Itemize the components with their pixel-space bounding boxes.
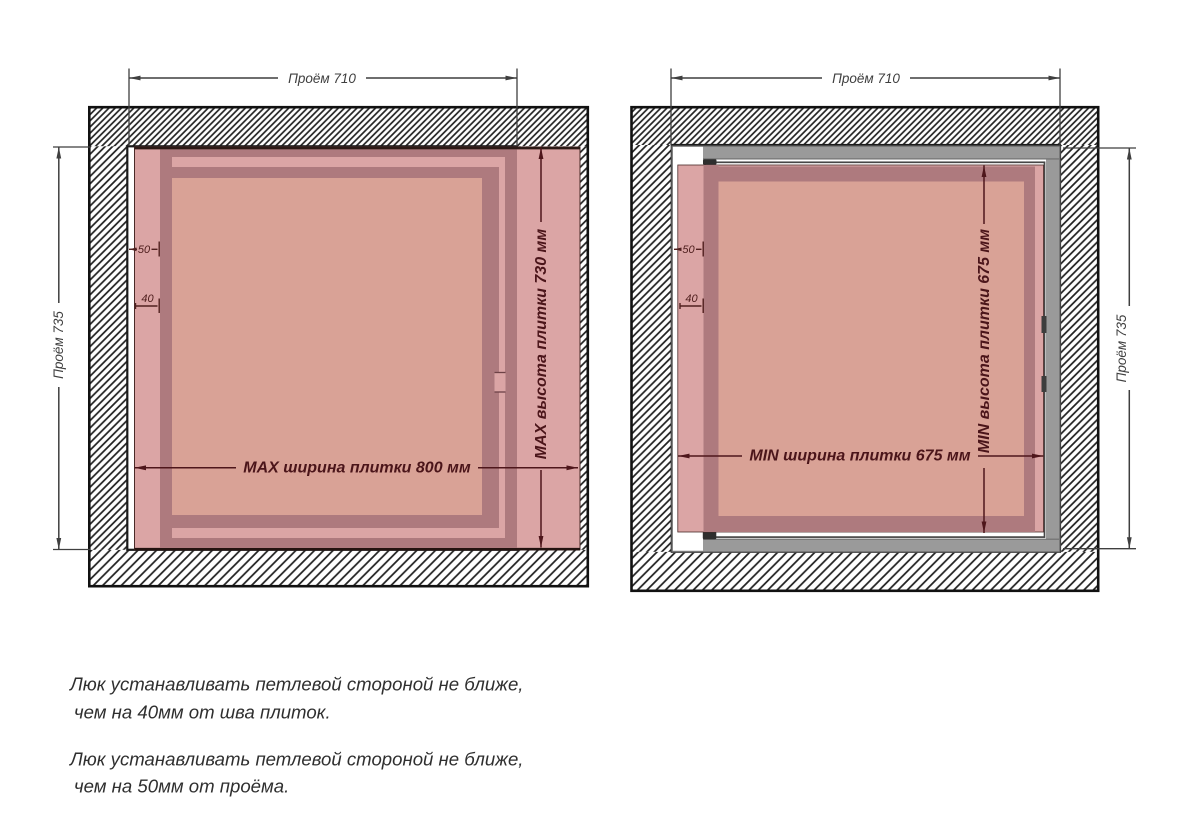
svg-text:40: 40	[141, 293, 154, 305]
svg-text:MIN высота плитки 675 мм: MIN высота плитки 675 мм	[976, 229, 993, 453]
svg-text:чем на 50мм от проёма.: чем на 50мм от проёма.	[74, 776, 289, 797]
svg-text:40: 40	[685, 293, 698, 305]
svg-text:Люк устанавливать петлевой сто: Люк устанавливать петлевой стороной не б…	[69, 749, 523, 770]
svg-text:MAX ширина плитки 800 мм: MAX ширина плитки 800 мм	[243, 460, 471, 477]
svg-text:MIN ширина плитки 675 мм: MIN ширина плитки 675 мм	[749, 448, 970, 465]
svg-text:чем на 40мм от шва плиток.: чем на 40мм от шва плиток.	[74, 702, 331, 723]
svg-text:Проём 710: Проём 710	[832, 71, 900, 86]
svg-text:Люк устанавливать петлевой сто: Люк устанавливать петлевой стороной не б…	[69, 674, 523, 695]
svg-text:Проём 710: Проём 710	[288, 71, 356, 86]
svg-text:MAX высота плитки 730 мм: MAX высота плитки 730 мм	[533, 229, 550, 460]
svg-text:50: 50	[682, 244, 695, 256]
svg-text:50: 50	[138, 244, 151, 256]
svg-text:Проём 735: Проём 735	[1114, 314, 1129, 382]
svg-text:Проём 735: Проём 735	[51, 311, 66, 379]
